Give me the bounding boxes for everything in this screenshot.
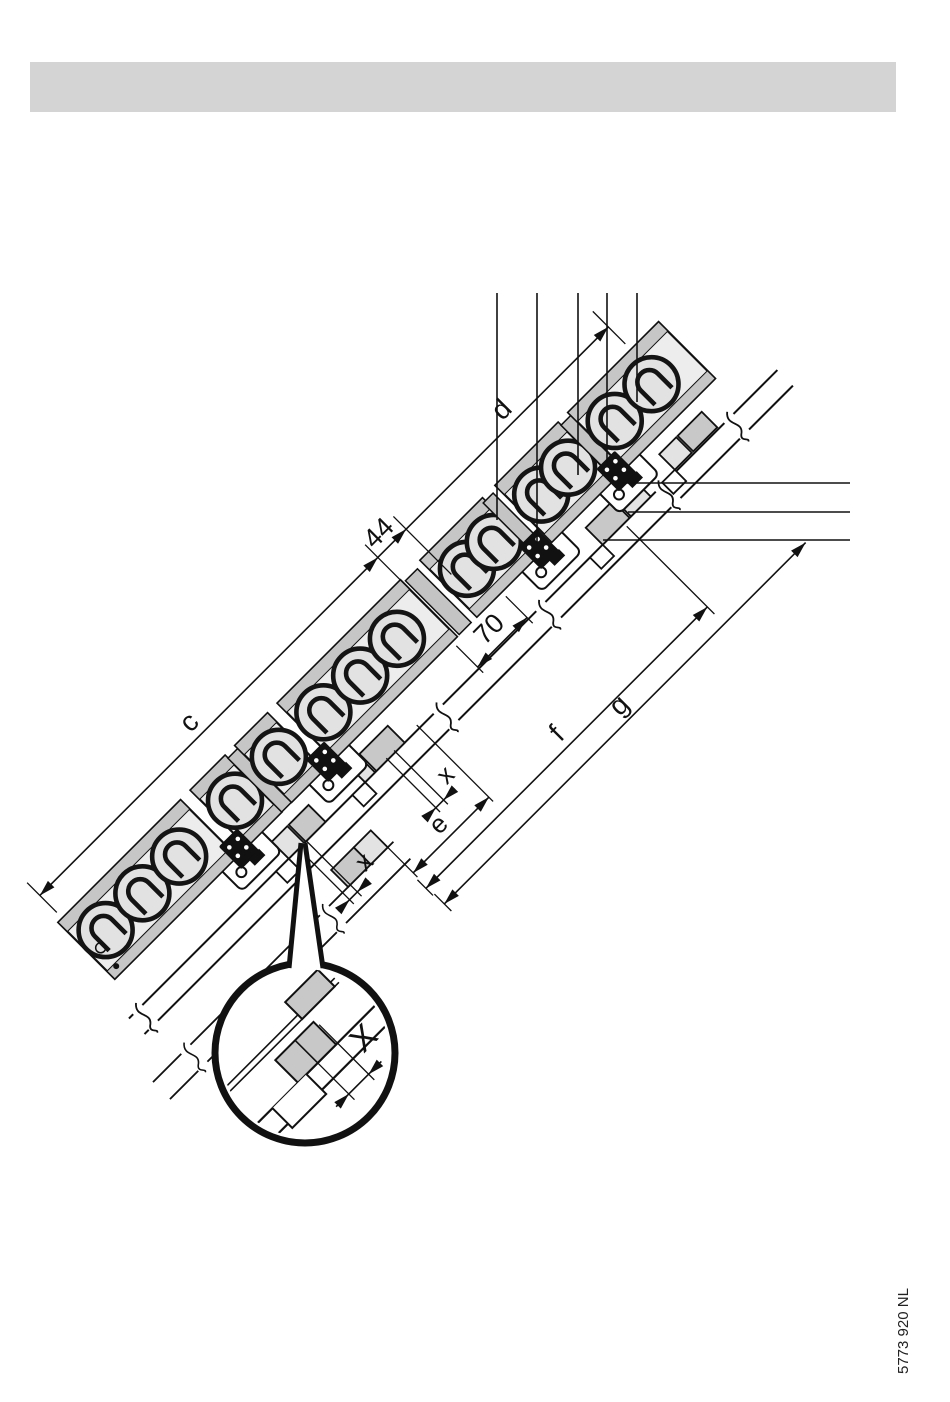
- header-bar: [30, 62, 896, 112]
- dim-label-g: g: [602, 688, 635, 721]
- break-line-icon: [129, 410, 799, 1080]
- dim-label-d: d: [485, 393, 518, 426]
- roof-section: c 44 d 70 x e x f g: [0, 241, 885, 1146]
- dim-label-c: c: [173, 706, 205, 738]
- dim-label-e: e: [422, 808, 453, 839]
- doc-number: 5773 920 NL: [895, 1288, 912, 1374]
- batten-strip-upper: [129, 370, 793, 1034]
- tile-row-segment: [58, 800, 237, 979]
- manual-page: c 44 d 70 x e x f g: [0, 0, 950, 1402]
- technical-drawing: c 44 d 70 x e x f g: [0, 0, 950, 1402]
- detail-circle: X: [207, 843, 415, 1163]
- tile-row-segment: [277, 580, 457, 760]
- tile-course: [58, 322, 715, 979]
- dim-label-44: 44: [357, 511, 399, 553]
- dim-label-f: f: [543, 719, 571, 747]
